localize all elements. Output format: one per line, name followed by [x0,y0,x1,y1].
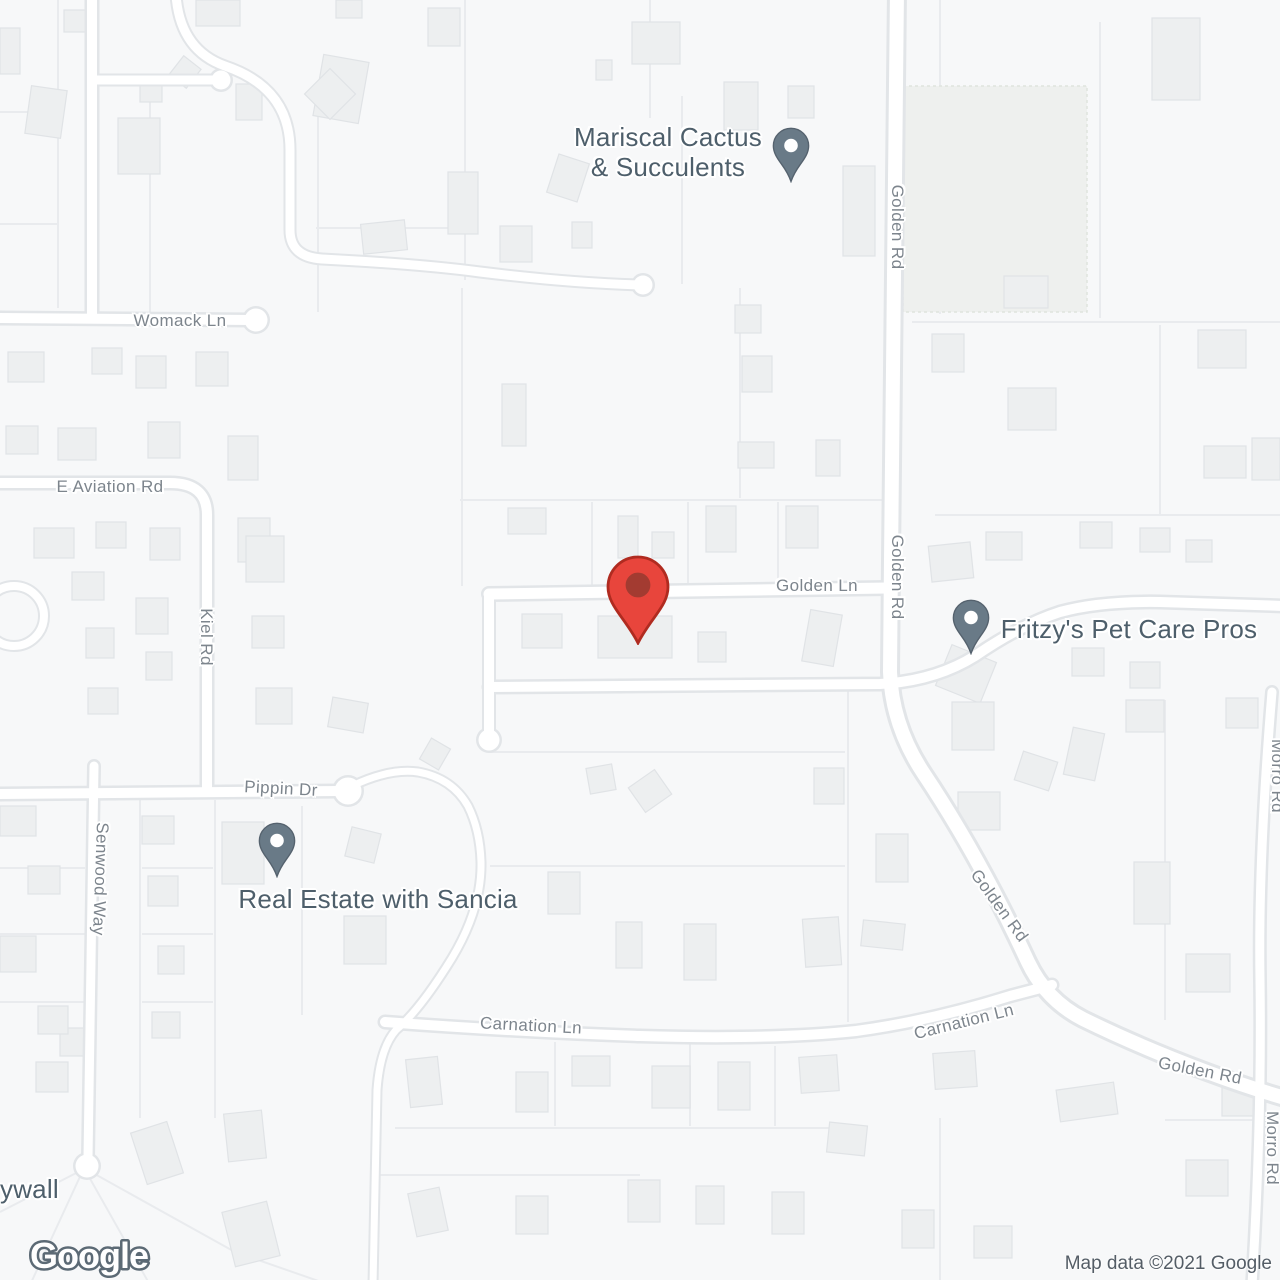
road-label-morro-rd-upper: Morro Rd [1267,739,1280,813]
road-label-golden-rd-top: Golden Rd [887,185,907,270]
destination-marker-icon[interactable] [606,555,670,645]
large-parcel [903,86,1087,312]
map-canvas[interactable]: Womack Ln E Aviation Rd Golden Rd Golden… [0,0,1280,1280]
road-label-e-aviation-rd: E Aviation Rd [57,477,164,497]
poi-label-sancia[interactable]: Real Estate with Sancia [238,884,517,914]
road-label-morro-rd-lower: Morro Rd [1262,1111,1280,1185]
google-logo-text: Google [30,1235,148,1276]
road-label-golden-rd-mid: Golden Rd [887,535,907,620]
poi-pin-fritzys[interactable] [952,599,990,655]
poi-label-mariscal-line1: Mariscal Cactus [574,122,762,152]
map-attribution: Map data ©2021 Google [1065,1253,1272,1275]
pin-dot [270,834,284,848]
poi-label-fritzys[interactable]: Fritzy's Pet Care Pros [1001,614,1257,644]
road-label-pippin-dr: Pippin Dr [244,777,318,801]
road-label-womack-ln: Womack Ln [133,311,226,331]
poi-label-mariscal-line2: & Succulents [574,152,762,182]
poi-label-edge-partial: ywall [0,1174,59,1204]
pin-dot [784,139,798,153]
marker-dot [626,573,651,598]
road-label-kiel-rd: Kiel Rd [196,608,216,666]
poi-label-mariscal[interactable]: Mariscal Cactus & Succulents [574,122,762,182]
google-logo[interactable]: Google [24,1232,184,1280]
poi-pin-mariscal[interactable] [772,127,810,183]
road-label-golden-ln: Golden Ln [776,576,858,596]
pin-dot [964,611,978,625]
road-label-senwood-way: Senwood Way [88,822,112,936]
poi-pin-sancia[interactable] [258,822,296,878]
